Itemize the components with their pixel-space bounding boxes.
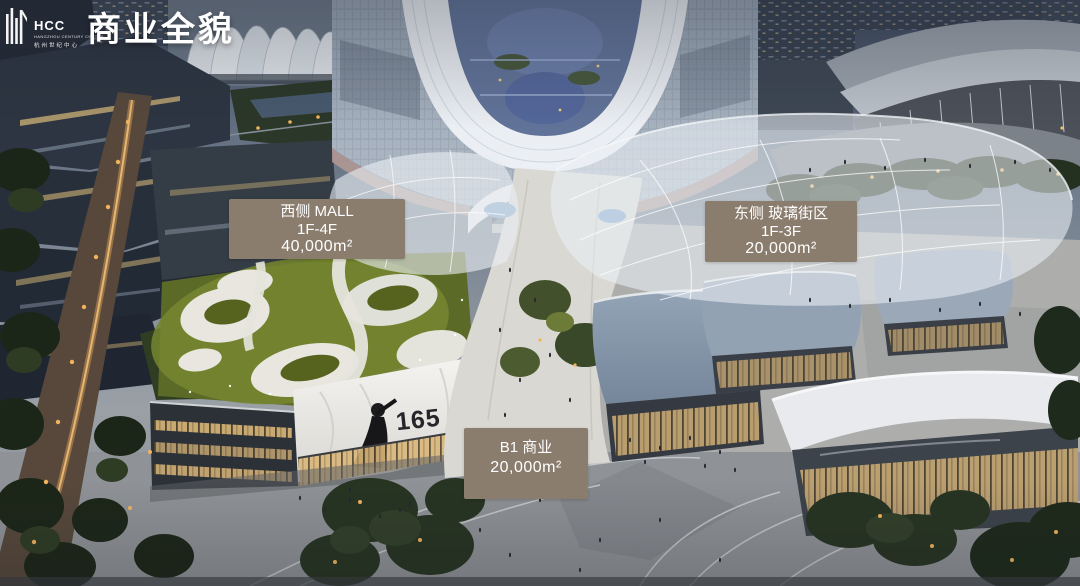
east-glass-area: 20,000m² <box>705 240 857 258</box>
presentation-slide: HCC HANGZHOU CENTURY CENTER 杭州世纪中心 商业全貌 … <box>0 0 1080 586</box>
label-west-mall: 西侧 MALL 1F-4F 40,000m² <box>229 199 405 259</box>
page-title: 商业全貌 <box>87 13 235 49</box>
b1-name: B1 商业 <box>464 438 588 458</box>
east-glass-floors: 1F-3F <box>705 223 857 241</box>
hcc-logo-mark-icon <box>6 8 28 48</box>
label-b1-commercial: B1 商业 20,000m² <box>464 428 588 499</box>
west-mall-name: 西侧 MALL <box>229 203 405 221</box>
b1-area: 20,000m² <box>464 458 588 478</box>
west-mall-area: 40,000m² <box>229 238 405 256</box>
billboard-165: 165 <box>395 404 443 438</box>
label-east-glass-street: 东侧 玻璃街区 1F-3F 20,000m² <box>705 201 857 262</box>
west-mall-floors: 1F-4F <box>229 221 405 239</box>
east-glass-name: 东侧 玻璃街区 <box>705 205 857 223</box>
